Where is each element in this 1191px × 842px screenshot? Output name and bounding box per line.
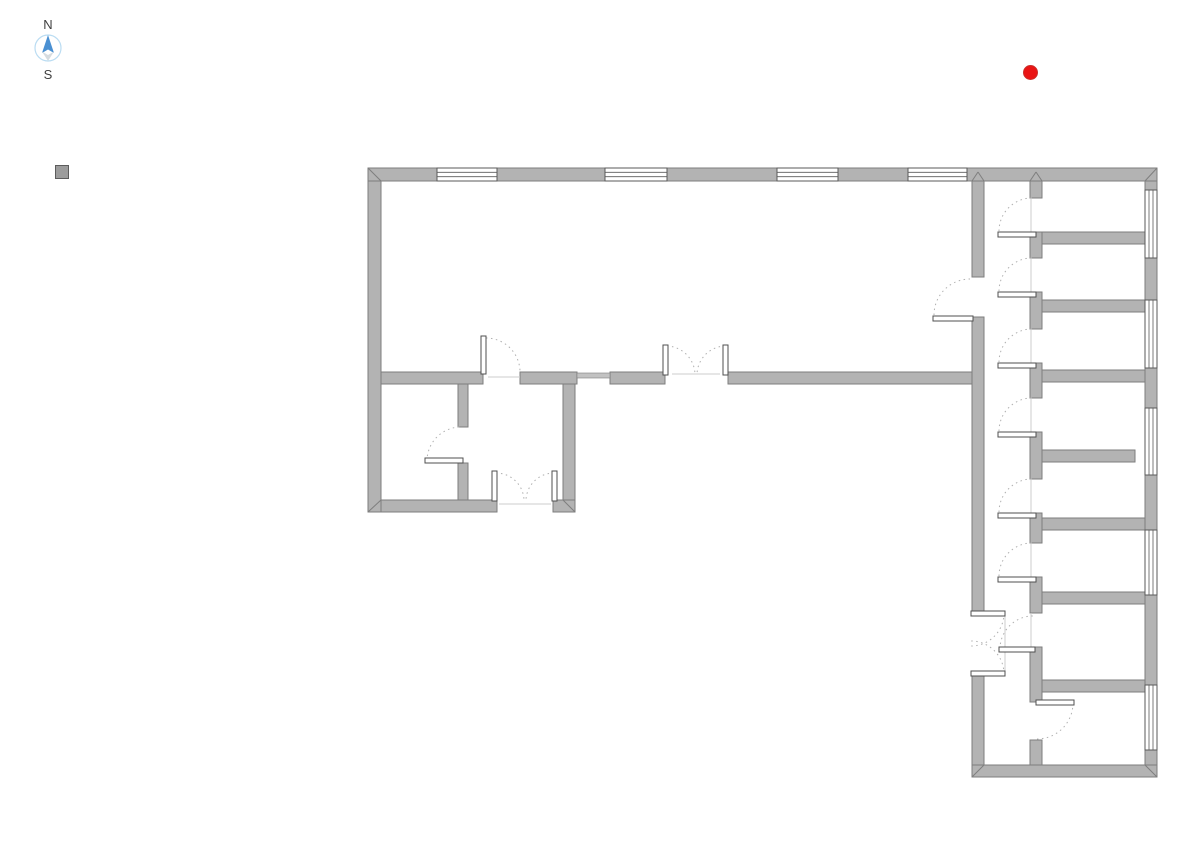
door-swing-arc — [1037, 703, 1073, 739]
door-swing-arc — [697, 346, 725, 375]
window-symbol — [1145, 408, 1157, 475]
door-leaf — [492, 471, 497, 501]
wall-segment — [972, 181, 984, 277]
wall-segment — [1030, 647, 1042, 702]
door-swing-arc — [526, 473, 554, 501]
wall-segment — [1042, 518, 1145, 530]
wall-segment — [1042, 680, 1145, 692]
door-swing-arc — [496, 473, 524, 501]
floor-plan-canvas[interactable] — [0, 0, 1191, 842]
window-symbol — [1145, 685, 1157, 750]
door-leaf — [998, 292, 1036, 297]
door-leaf — [998, 363, 1036, 368]
window-symbol — [1145, 190, 1157, 258]
window-symbol — [908, 168, 967, 181]
door-swing-arc — [971, 613, 1004, 646]
door-leaf — [1036, 700, 1074, 705]
wall-segment — [553, 500, 575, 512]
window-symbol — [1145, 530, 1157, 595]
thin-wall-segment — [577, 373, 610, 378]
door-leaf — [552, 471, 557, 501]
wall-segment — [728, 372, 972, 384]
door-swing-arc — [427, 427, 461, 461]
door-leaf — [971, 611, 1005, 616]
door-leaf — [425, 458, 463, 463]
wall-segment — [1042, 450, 1135, 462]
door-leaf — [723, 345, 728, 375]
door-swing-arc — [971, 641, 1004, 674]
door-swing-arc — [999, 198, 1032, 231]
wall-segment — [972, 765, 1157, 777]
window-symbol — [437, 168, 497, 181]
door-swing-arc — [999, 398, 1032, 431]
door-leaf — [998, 232, 1036, 237]
window-symbol — [605, 168, 667, 181]
wall-segment — [563, 384, 575, 500]
wall-segment — [368, 372, 483, 384]
wall-segment — [1042, 232, 1145, 244]
door-leaf — [999, 647, 1035, 652]
wall-segment — [1030, 432, 1042, 479]
door-leaf — [998, 577, 1036, 582]
door-swing-arc — [999, 329, 1032, 362]
wall-segment — [1030, 740, 1042, 765]
door-leaf — [933, 316, 973, 321]
door-leaf — [998, 432, 1036, 437]
door-swing-arc — [934, 279, 970, 315]
walls-layer — [368, 168, 1157, 777]
wall-segment — [1030, 292, 1042, 329]
door-leaf — [663, 345, 668, 375]
wall-segment — [1042, 592, 1145, 604]
door-swing-arc — [667, 346, 695, 375]
window-symbol — [1145, 300, 1157, 368]
window-symbol — [777, 168, 838, 181]
wall-segment — [458, 384, 468, 427]
wall-segment — [368, 181, 381, 512]
door-leaf — [971, 671, 1005, 676]
door-leaf — [998, 513, 1036, 518]
door-swing-arc — [999, 479, 1032, 512]
wall-segment — [1030, 181, 1042, 198]
wall-segment — [368, 500, 497, 512]
wall-segment — [1042, 300, 1145, 312]
floor-plan-page: N S — [0, 0, 1191, 842]
door-swing-arc — [999, 258, 1032, 291]
wall-segment — [610, 372, 665, 384]
door-leaf — [481, 336, 486, 374]
wall-segment — [972, 676, 984, 765]
door-swing-arc — [999, 543, 1032, 576]
door-swing-arc — [486, 338, 520, 372]
wall-segment — [458, 463, 468, 500]
wall-segment — [972, 317, 984, 611]
wall-segment — [520, 372, 577, 384]
wall-segment — [1042, 370, 1145, 382]
